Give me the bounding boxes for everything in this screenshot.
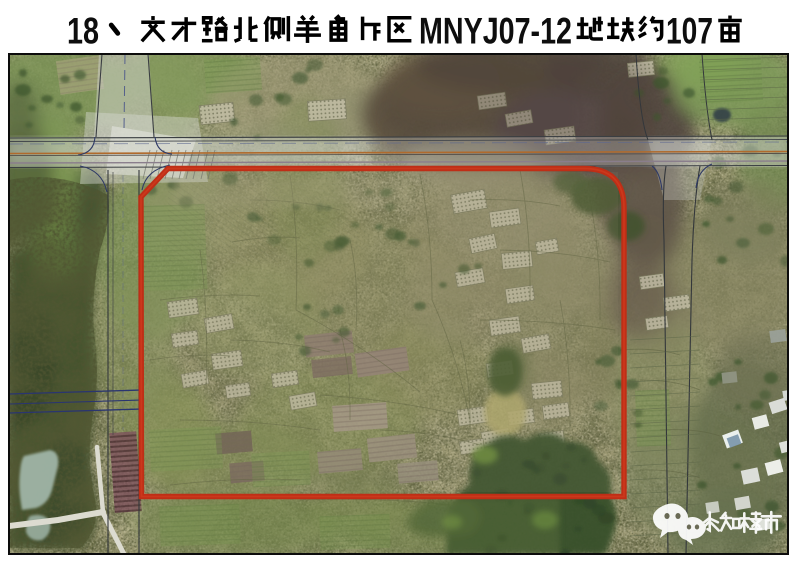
svg-text:18: 18 <box>67 11 99 52</box>
svg-text:MNYJ07-12: MNYJ07-12 <box>419 11 572 52</box>
svg-text:107: 107 <box>666 11 713 52</box>
